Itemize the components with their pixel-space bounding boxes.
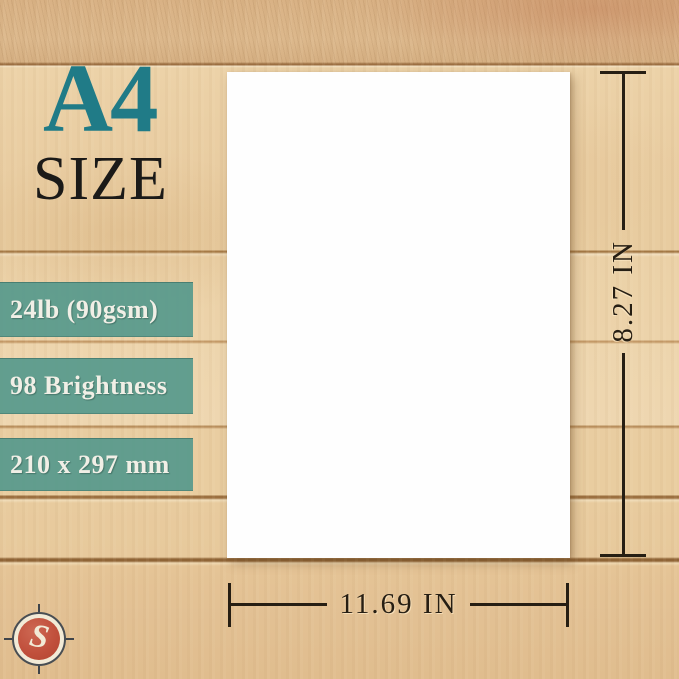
- dimension-line-right: [470, 603, 566, 606]
- height-dimension-label: 8.27 IN: [609, 240, 638, 343]
- title-a4: A4: [43, 50, 156, 147]
- spec-banner-weight-label: 24lb (90gsm): [0, 295, 158, 325]
- paper-sheet: [227, 72, 570, 558]
- logo-circle: S: [18, 618, 60, 660]
- dimension-line-lower: [622, 353, 625, 554]
- logo-monogram: S: [27, 619, 52, 655]
- dimension-line-left: [231, 603, 327, 606]
- spec-banner-dimensions: 210 x 297 mm: [0, 438, 193, 491]
- dimension-tick-right: [566, 583, 569, 627]
- title-size: SIZE: [33, 148, 168, 210]
- spec-banner-brightness-label: 98 Brightness: [0, 371, 167, 401]
- spec-banner-weight: 24lb (90gsm): [0, 282, 193, 337]
- height-dimension: 8.27 IN: [599, 71, 647, 557]
- brand-logo: S: [4, 604, 74, 674]
- spec-banner-dimensions-label: 210 x 297 mm: [0, 450, 170, 480]
- width-dimension-label: 11.69 IN: [339, 590, 457, 619]
- dimension-line-upper: [622, 74, 625, 230]
- product-infographic: A4 SIZE 24lb (90gsm) 98 Brightness 210 x…: [0, 0, 679, 679]
- width-dimension: 11.69 IN: [228, 582, 569, 627]
- logo-ring: S: [12, 612, 66, 666]
- spec-banner-brightness: 98 Brightness: [0, 358, 193, 414]
- dimension-tick-bottom: [600, 554, 646, 557]
